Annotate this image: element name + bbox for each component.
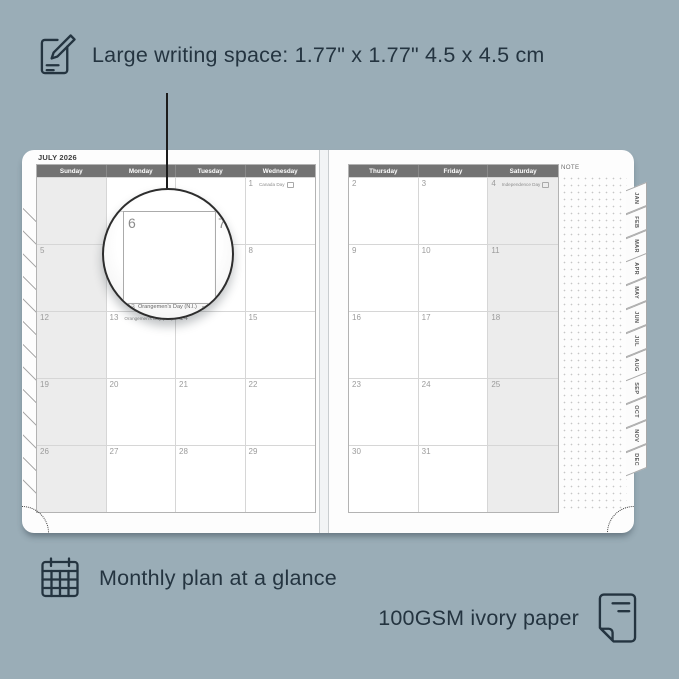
day-cell: 14 — [176, 311, 246, 378]
magnifier-circle: 6 7 13 Orangemen's Day (N.I.) — [102, 188, 234, 320]
weekday-header: Tuesday — [176, 165, 246, 177]
month-tabs: JANFEBMARAPRMAYJUNJULAUGSEPOCTNOVDEC — [626, 186, 649, 472]
page-edge-hatching — [23, 206, 36, 502]
day-cell: 15 — [246, 311, 316, 378]
day-cell: 10 — [419, 244, 489, 311]
monthly-plan-text: Monthly plan at a glance — [99, 566, 337, 591]
day-cell: 31 — [419, 445, 489, 512]
day-cell: 18 — [488, 311, 558, 378]
writing-space-text: Large writing space: 1.77" x 1.77" 4.5 x… — [92, 43, 545, 68]
day-cell: 25 — [488, 378, 558, 445]
planner-spread: JULY 2026 SundayMondayTuesdayWednesday1C… — [22, 150, 634, 533]
corner-perforation-right — [602, 501, 634, 533]
day-cell: 2 — [349, 177, 419, 244]
day-cell: 16 — [349, 311, 419, 378]
calendar-grid-right: ThursdayFridaySaturday234Independence Da… — [348, 164, 559, 513]
weekday-header: Saturday — [488, 165, 558, 177]
day-cell: 28 — [176, 445, 246, 512]
day-cell: 17 — [419, 311, 489, 378]
calendar-grid-icon — [40, 557, 80, 599]
day-cell: 3 — [419, 177, 489, 244]
magnified-holiday-text: Orangemen's Day (N.I.) — [138, 304, 197, 310]
pencil-note-icon — [38, 32, 77, 79]
day-cell: 20 — [107, 378, 177, 445]
day-cell — [488, 445, 558, 512]
day-cell: 9 — [349, 244, 419, 311]
day-cell: 12 — [37, 311, 107, 378]
note-section: NOTE — [561, 164, 627, 512]
day-cell: 21 — [176, 378, 246, 445]
month-title: JULY 2026 — [38, 153, 77, 162]
magnified-date: 13 — [127, 304, 135, 311]
magnified-day-7: 7 — [218, 215, 226, 231]
day-cell: 4Independence Day — [488, 177, 558, 244]
weekday-header: Wednesday — [246, 165, 316, 177]
day-cell: 11 — [488, 244, 558, 311]
weekday-header: Friday — [419, 165, 489, 177]
day-cell: 1Canada Day — [246, 177, 316, 244]
day-cell: 30 — [349, 445, 419, 512]
day-cell: 27 — [107, 445, 177, 512]
holiday-flag-icon — [202, 306, 209, 312]
writing-space-annotation: Large writing space: 1.77" x 1.77" 4.5 x… — [38, 32, 545, 79]
corner-perforation-left — [22, 501, 54, 533]
day-cell: 22 — [246, 378, 316, 445]
dot-grid — [561, 175, 627, 512]
day-cell: 8 — [246, 244, 316, 311]
monthly-plan-annotation: Monthly plan at a glance — [40, 557, 337, 599]
writing-space-outline — [123, 211, 216, 304]
magnified-day-6: 6 — [128, 215, 136, 231]
paper-text: 100GSM ivory paper — [378, 606, 579, 631]
center-fold — [317, 150, 331, 533]
day-cell: 13Orangemen's Day (N.I.) — [107, 311, 177, 378]
day-cell: 19 — [37, 378, 107, 445]
magnified-holiday: 13 Orangemen's Day (N.I.) — [104, 304, 232, 312]
day-cell — [37, 177, 107, 244]
weekday-header: Thursday — [349, 165, 419, 177]
day-cell: 23 — [349, 378, 419, 445]
day-cell: 24 — [419, 378, 489, 445]
day-cell: 29 — [246, 445, 316, 512]
paper-sheet-icon — [596, 592, 637, 644]
day-cell: 5 — [37, 244, 107, 311]
weekday-header: Sunday — [37, 165, 107, 177]
holiday-flag-icon — [542, 182, 549, 188]
callout-line — [166, 93, 168, 190]
note-label: NOTE — [561, 164, 627, 171]
holiday-flag-icon — [287, 182, 294, 188]
paper-annotation: 100GSM ivory paper — [378, 592, 637, 644]
